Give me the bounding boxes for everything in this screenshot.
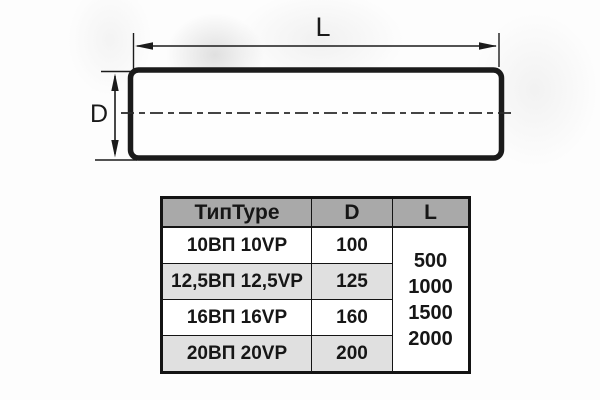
col-header-l: L [393, 198, 470, 228]
dimension-arrowhead-down [111, 140, 118, 158]
duct-outline [131, 70, 502, 158]
dimension-arrowhead-right [479, 42, 497, 50]
l-value: 2000 [393, 326, 468, 352]
l-value: 500 [393, 248, 468, 274]
diameter-label: D [90, 100, 108, 128]
d-cell: 200 [312, 336, 393, 373]
type-cell: 16ВП 16VP [162, 300, 312, 336]
dimension-arrowhead-up [111, 74, 118, 92]
l-cell: 500 1000 1500 2000 [393, 227, 470, 373]
col-header-type: ТипType [162, 198, 312, 228]
length-label: L [315, 12, 330, 42]
product-drawing-page: L D ТипType D L 10ВП 10VP [0, 0, 600, 400]
size-table: ТипType D L 10ВП 10VP 100 500 1000 1500 … [160, 196, 471, 374]
type-cell: 12,5ВП 12,5VP [162, 264, 312, 300]
table-header-row: ТипType D L [162, 198, 470, 228]
l-value: 1000 [393, 274, 468, 300]
table-row: 10ВП 10VP 100 500 1000 1500 2000 [162, 227, 470, 264]
col-header-d: D [312, 198, 393, 228]
duct-diagram: L D [0, 0, 600, 192]
l-value: 1500 [393, 300, 468, 326]
d-cell: 160 [312, 300, 393, 336]
dimension-arrowhead-left [135, 42, 153, 50]
type-cell: 10ВП 10VP [162, 227, 312, 264]
d-cell: 125 [312, 264, 393, 300]
length-dimension: L [134, 12, 500, 69]
d-cell: 100 [312, 227, 393, 264]
type-cell: 20ВП 20VP [162, 336, 312, 373]
